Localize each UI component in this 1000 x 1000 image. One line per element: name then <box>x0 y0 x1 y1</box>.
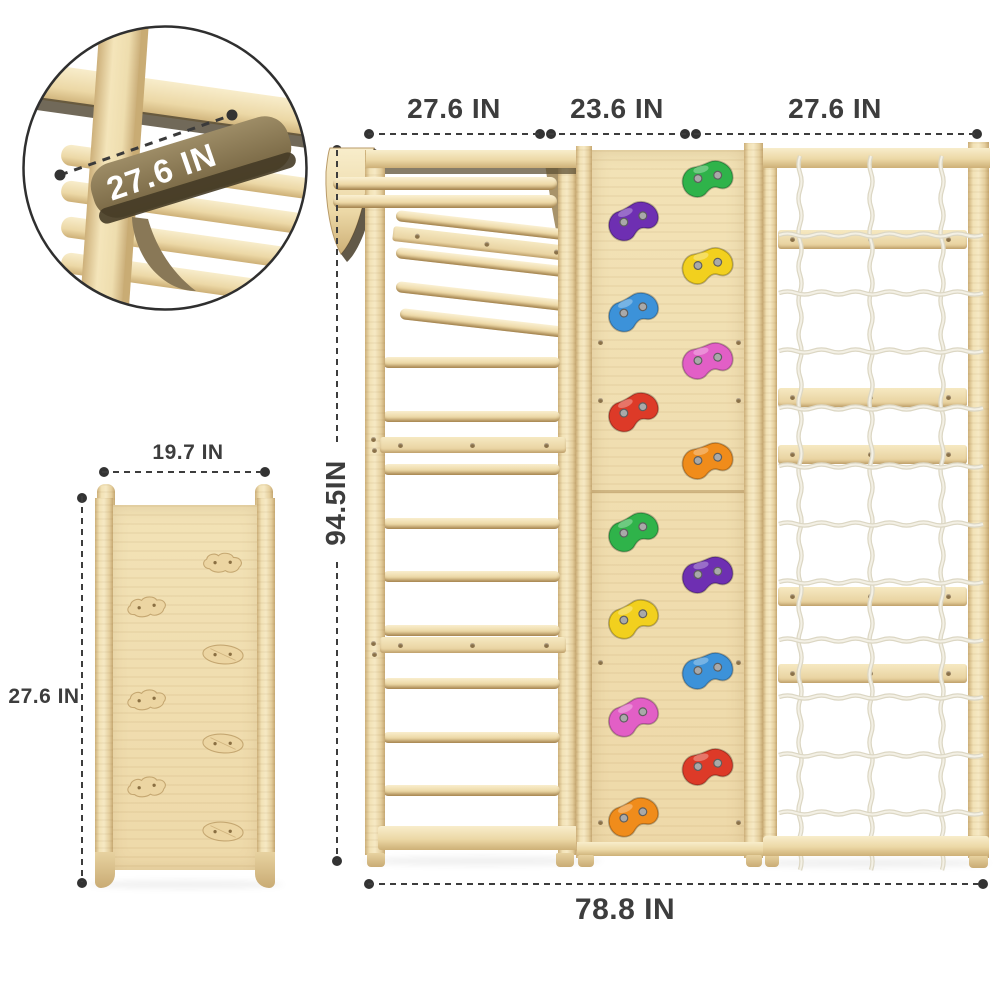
pullup-bar <box>333 177 557 190</box>
wall-panel-seam <box>592 490 744 493</box>
wall-foot <box>746 855 762 867</box>
dimension-dot <box>227 110 238 121</box>
climbing-hold-red <box>604 389 664 438</box>
ramp-foot-right <box>255 852 275 888</box>
detail-inset-circle: 27.6 IN <box>20 23 310 313</box>
climbing-hold-purple <box>679 552 738 600</box>
ladder-foot <box>556 853 574 867</box>
ladder-board <box>380 637 566 653</box>
height-dim-line-bottom <box>336 562 338 860</box>
ramp-wood-hold <box>199 818 246 844</box>
top-dim-line-1 <box>368 133 540 135</box>
ladder-rung <box>383 785 560 796</box>
climbing-hold-red <box>679 744 738 792</box>
ladder-rung <box>383 464 560 475</box>
wall-foot <box>578 855 594 867</box>
ladder-foot <box>367 853 385 867</box>
ramp-wood-hold <box>123 593 170 619</box>
net-bottom-rail <box>763 836 989 856</box>
wall-post-left <box>576 146 592 858</box>
ladder-rung <box>383 678 560 689</box>
ladder-rung <box>383 732 560 743</box>
ladder-board <box>380 437 566 453</box>
ladder-top-rail-shadow <box>366 167 578 174</box>
ramp-rail-left <box>95 498 113 870</box>
ramp-wood-hold <box>123 686 170 712</box>
ramp-height-line <box>81 496 83 882</box>
ladder-rung <box>383 571 560 582</box>
ladder-post-left <box>365 150 385 855</box>
climbing-hold-blue <box>604 289 664 338</box>
inset-wood-detail: 27.6 IN <box>0 12 340 325</box>
product-dimension-diagram: 27.6 IN 19.7 IN 27.6 IN <box>0 0 1000 1000</box>
ramp-foot-left <box>95 852 115 888</box>
climbing-net <box>763 140 993 865</box>
climbing-hold-green <box>604 509 664 558</box>
pullup-bar <box>333 195 557 208</box>
ramp-rail-right <box>257 498 275 870</box>
climbing-hold-orange <box>604 794 664 843</box>
ramp-width-line <box>102 471 267 473</box>
ladder-post-right <box>558 150 576 855</box>
ladder-rung <box>383 357 560 368</box>
width-dim-line <box>368 883 984 885</box>
ramp-wood-hold <box>199 730 246 756</box>
height-dim-line-top <box>336 150 338 442</box>
climbing-hold-pink <box>679 338 738 386</box>
ramp-wood-hold <box>123 773 170 799</box>
ladder-bottom-rail <box>378 826 578 850</box>
ladder-rung <box>383 625 560 636</box>
climbing-hold-purple <box>604 198 664 247</box>
climbing-hold-orange <box>679 438 738 486</box>
ramp-wood-hold <box>199 641 246 667</box>
ramp-wood-hold <box>199 549 246 575</box>
climbing-hold-green <box>679 156 738 204</box>
dimension-dot <box>55 170 66 181</box>
climbing-hold-yellow <box>604 596 664 645</box>
top-dim-line-2 <box>548 133 686 135</box>
ladder-rung <box>383 518 560 529</box>
climbing-hold-yellow <box>679 243 738 291</box>
top-dim-line-3 <box>694 133 978 135</box>
wall-bottom-rail <box>577 842 763 856</box>
ladder-top-rail <box>366 150 578 168</box>
climbing-hold-blue <box>679 648 738 696</box>
climbing-hold-pink <box>604 694 664 743</box>
ladder-rung <box>383 411 560 422</box>
wall-post-right <box>744 143 763 858</box>
